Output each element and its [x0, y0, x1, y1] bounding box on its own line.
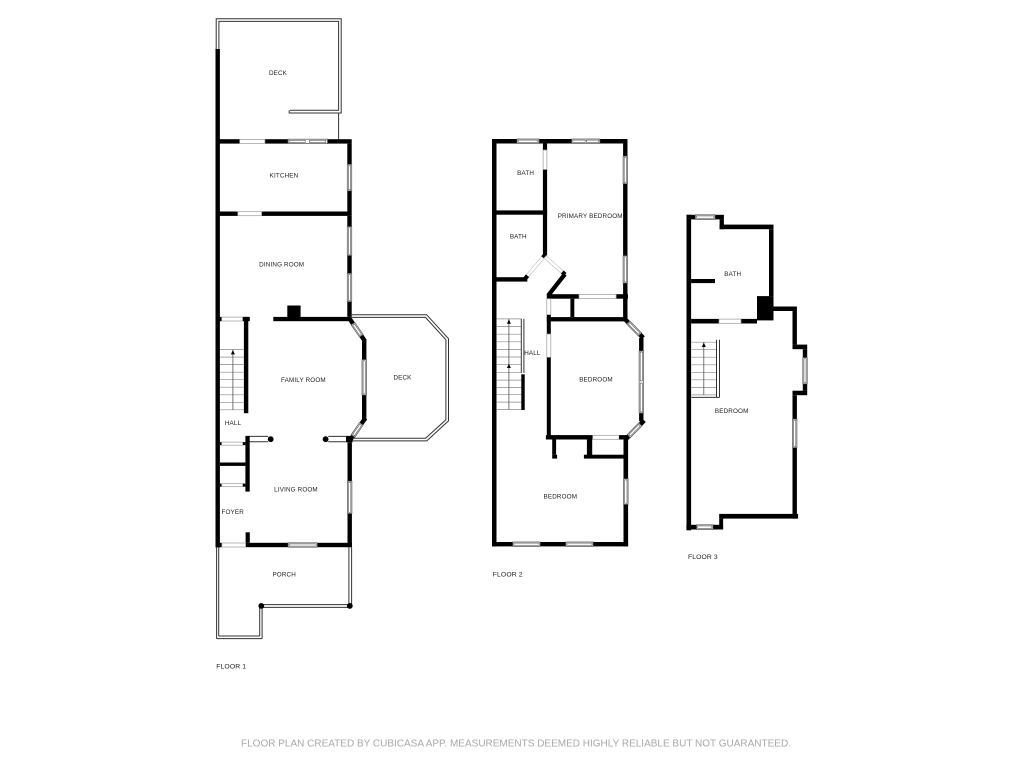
svg-text:BATH: BATH — [724, 271, 741, 278]
svg-text:DINING ROOM: DINING ROOM — [259, 261, 304, 268]
svg-text:HALL: HALL — [524, 350, 541, 357]
svg-text:BEDROOM: BEDROOM — [544, 493, 578, 500]
svg-text:PORCH: PORCH — [272, 571, 296, 578]
svg-text:LIVING ROOM: LIVING ROOM — [274, 486, 318, 493]
svg-text:FLOOR 3: FLOOR 3 — [688, 554, 718, 561]
svg-text:BATH: BATH — [517, 170, 534, 177]
svg-text:FLOOR 1: FLOOR 1 — [216, 664, 246, 671]
svg-text:FOYER: FOYER — [221, 509, 244, 516]
svg-text:HALL: HALL — [225, 420, 242, 427]
svg-text:FLOOR PLAN CREATED BY CUBICASA: FLOOR PLAN CREATED BY CUBICASA APP. MEAS… — [241, 739, 791, 750]
svg-text:FLOOR 2: FLOOR 2 — [493, 572, 523, 579]
svg-text:PRIMARY BEDROOM: PRIMARY BEDROOM — [558, 213, 623, 220]
svg-text:DECK: DECK — [269, 70, 288, 77]
svg-text:BEDROOM: BEDROOM — [715, 408, 749, 415]
svg-text:BATH: BATH — [510, 234, 527, 241]
svg-text:DECK: DECK — [393, 375, 412, 382]
svg-text:KITCHEN: KITCHEN — [270, 173, 299, 180]
svg-text:BEDROOM: BEDROOM — [579, 377, 613, 384]
svg-text:FAMILY ROOM: FAMILY ROOM — [281, 377, 326, 384]
